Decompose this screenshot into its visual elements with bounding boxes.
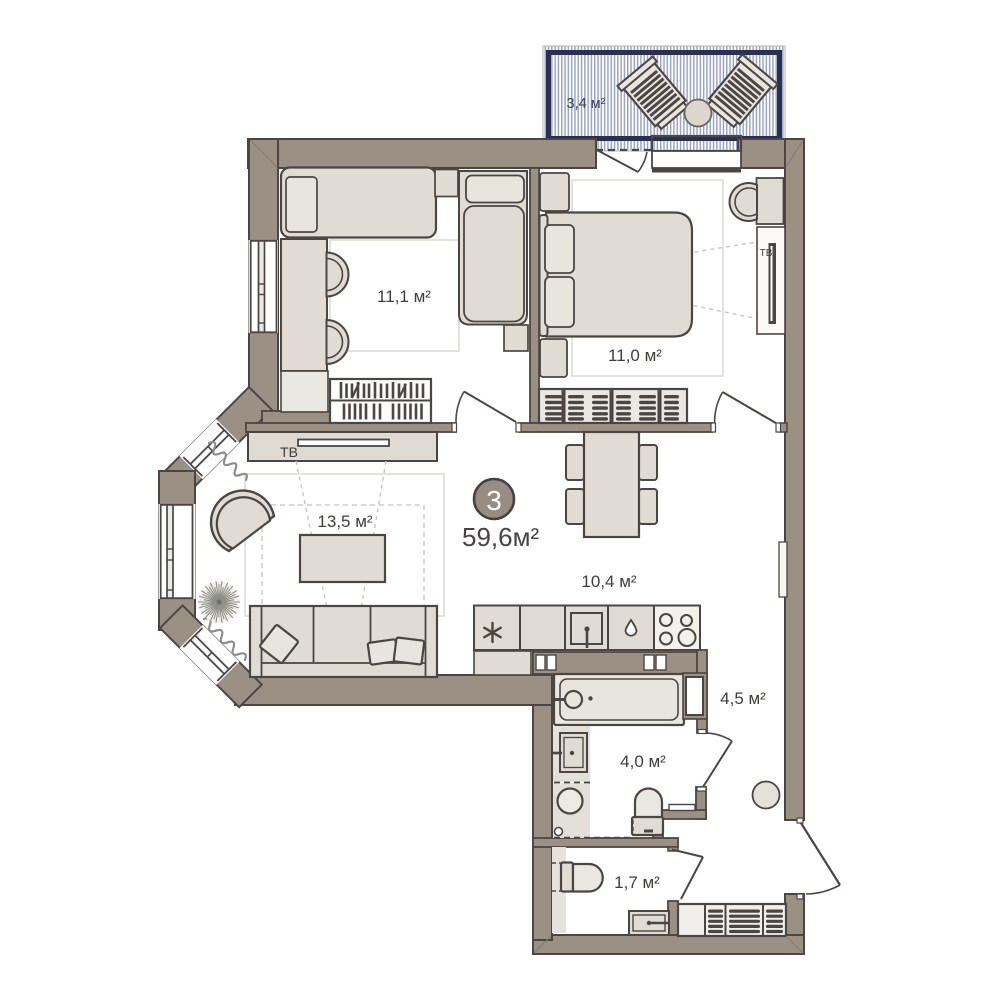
svg-text:4,0 м²: 4,0 м² <box>620 752 666 771</box>
svg-text:11,0 м²: 11,0 м² <box>608 346 662 365</box>
svg-text:3,4 м²: 3,4 м² <box>567 96 606 112</box>
svg-text:4,5 м²: 4,5 м² <box>720 689 766 708</box>
svg-text:ТВ: ТВ <box>280 444 298 460</box>
svg-text:13,5 м²: 13,5 м² <box>317 512 372 531</box>
svg-text:11,1 м²: 11,1 м² <box>377 287 431 306</box>
svg-text:10,4 м²: 10,4 м² <box>581 572 636 591</box>
svg-text:1,7 м²: 1,7 м² <box>614 873 660 892</box>
svg-text:3: 3 <box>486 485 502 516</box>
svg-text:59,6м²: 59,6м² <box>462 522 539 552</box>
svg-text:ТВ: ТВ <box>760 248 773 259</box>
